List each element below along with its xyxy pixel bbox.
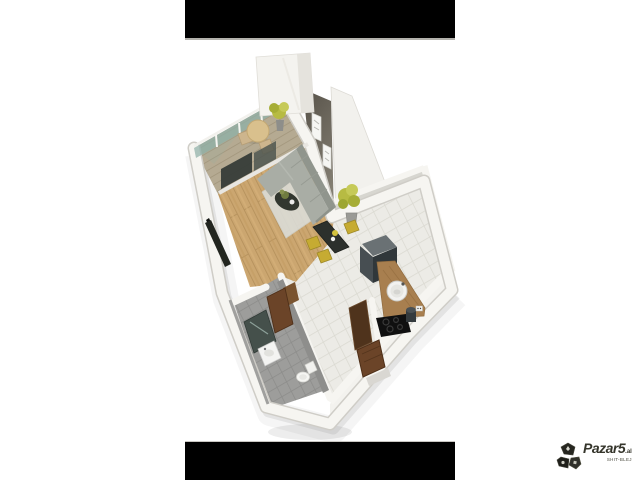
letterbox-bottom <box>185 441 455 480</box>
watermark-domain-suffix: .al <box>625 449 632 455</box>
watermark-tagline: SHIT-BLEJ <box>583 458 632 463</box>
watermark-logo-gems <box>556 441 582 473</box>
watermark-brand-text: Pazar5 <box>583 440 625 456</box>
screenshot-root: Pazar5.al SHIT-BLEJ <box>0 0 640 480</box>
watermark: Pazar5.al SHIT-BLEJ <box>556 441 640 475</box>
letterbox-top <box>185 0 455 40</box>
listing-photo <box>185 0 455 480</box>
